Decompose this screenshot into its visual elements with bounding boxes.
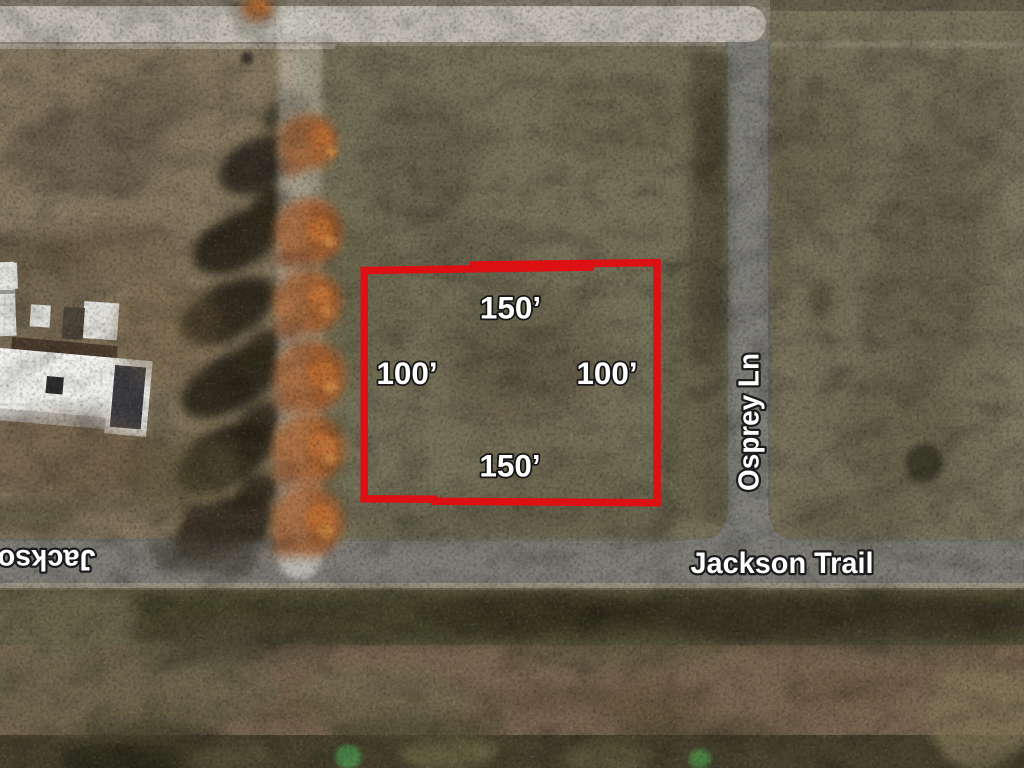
svg-text:100’: 100’ — [376, 355, 437, 391]
svg-text:100’: 100’ — [576, 355, 637, 391]
svg-text:Jackson Trail: Jackson Trail — [0, 543, 96, 576]
svg-text:150’: 150’ — [480, 290, 541, 326]
svg-text:Osprey Ln: Osprey Ln — [734, 353, 766, 491]
svg-text:Jackson Trail: Jackson Trail — [691, 547, 874, 580]
svg-text:150’: 150’ — [479, 448, 540, 484]
